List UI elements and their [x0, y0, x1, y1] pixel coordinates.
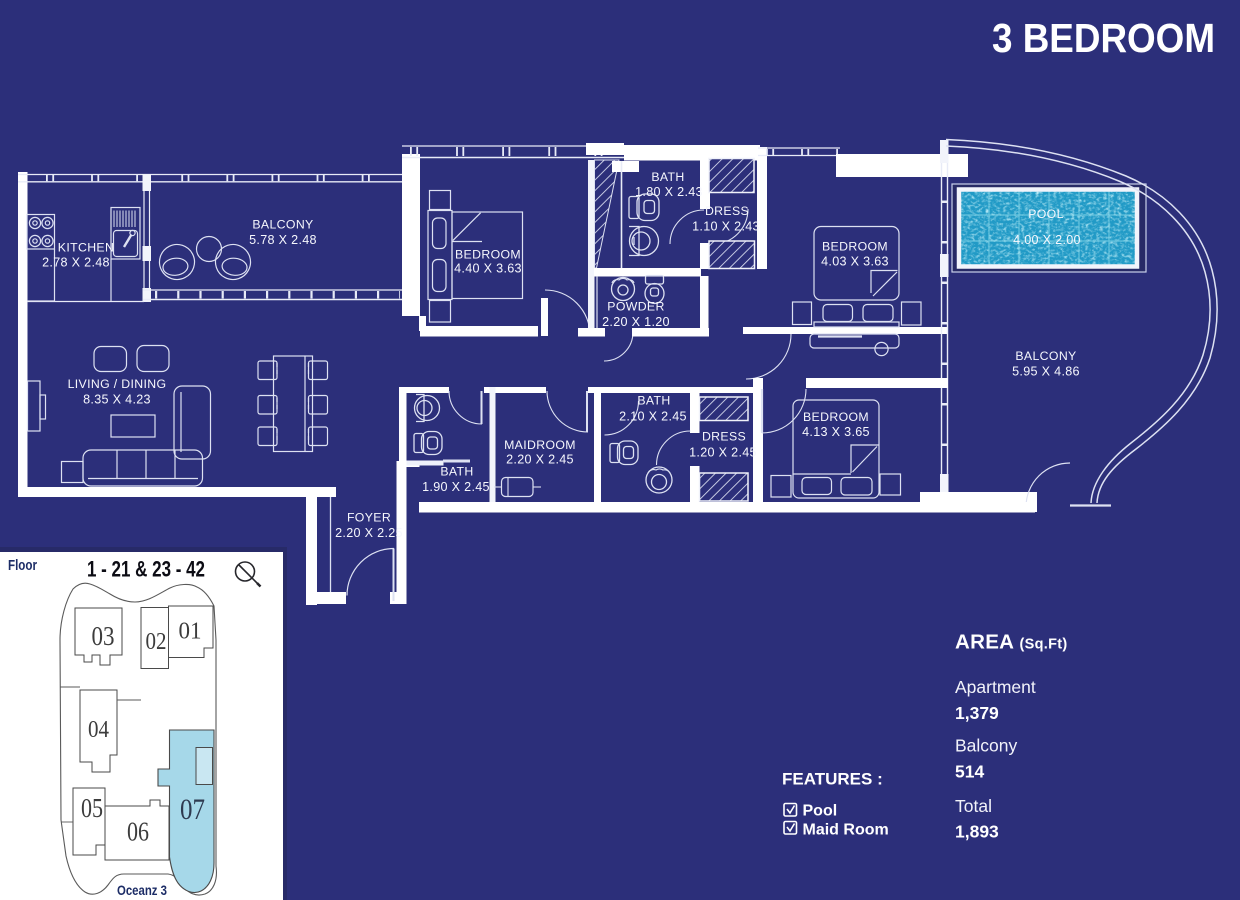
svg-text:2.20 X 1.20: 2.20 X 1.20 [602, 315, 670, 329]
svg-text:Pool: Pool [803, 803, 838, 820]
svg-text:MAIDROOM: MAIDROOM [504, 438, 576, 452]
svg-text:4.13 X 3.65: 4.13 X 3.65 [802, 425, 870, 439]
svg-text:05: 05 [81, 793, 103, 823]
svg-text:Total: Total [955, 796, 992, 816]
svg-text:8.35 X 4.23: 8.35 X 4.23 [83, 393, 151, 407]
svg-text:4.40 X 3.63: 4.40 X 3.63 [454, 262, 522, 276]
svg-text:Apartment: Apartment [955, 677, 1036, 697]
svg-text:BEDROOM: BEDROOM [822, 240, 888, 254]
svg-text:2.20 X 2.45: 2.20 X 2.45 [506, 453, 574, 467]
svg-text:06: 06 [127, 817, 149, 847]
svg-text:POOL: POOL [1028, 207, 1064, 221]
svg-text:BATH: BATH [651, 170, 684, 184]
svg-text:DRESS: DRESS [702, 430, 746, 444]
svg-text:BEDROOM: BEDROOM [455, 248, 521, 262]
svg-text:5.78 X 2.48: 5.78 X 2.48 [249, 233, 317, 247]
svg-text:BALCONY: BALCONY [252, 218, 313, 232]
svg-text:2.10 X 2.45: 2.10 X 2.45 [619, 410, 687, 424]
svg-text:BATH: BATH [440, 465, 473, 479]
svg-text:1.10 X 2.43: 1.10 X 2.43 [692, 220, 760, 234]
svg-text:03: 03 [92, 621, 115, 651]
svg-text:FEATURES :: FEATURES : [782, 770, 883, 789]
svg-text:1.80 X 2.43: 1.80 X 2.43 [635, 185, 703, 199]
svg-text:514: 514 [955, 762, 984, 782]
svg-text:Balcony: Balcony [955, 736, 1018, 756]
svg-text:BATH: BATH [637, 394, 670, 408]
svg-text:FOYER: FOYER [347, 511, 391, 525]
svg-text:01: 01 [179, 619, 202, 645]
svg-text:1,379: 1,379 [955, 703, 999, 723]
svg-text:04: 04 [88, 717, 109, 743]
svg-text:4.03 X 3.63: 4.03 X 3.63 [821, 255, 889, 269]
svg-text:1 - 21 & 23 - 42: 1 - 21 & 23 - 42 [87, 557, 205, 582]
svg-text:BALCONY: BALCONY [1015, 349, 1076, 363]
svg-text:07: 07 [180, 793, 205, 826]
svg-text:LIVING / DINING: LIVING / DINING [68, 377, 167, 391]
svg-text:Floor: Floor [8, 558, 37, 574]
svg-text:02: 02 [146, 629, 167, 655]
svg-text:2.20 X 2.25: 2.20 X 2.25 [335, 526, 403, 540]
svg-text:POWDER: POWDER [607, 300, 664, 314]
svg-text:1.90 X 2.45: 1.90 X 2.45 [422, 480, 490, 494]
svg-text:2.78 X 2.48: 2.78 X 2.48 [42, 256, 110, 270]
svg-text:4.00 X 2.00: 4.00 X 2.00 [1013, 233, 1081, 247]
svg-text:DRESS: DRESS [705, 204, 749, 218]
svg-text:1,893: 1,893 [955, 822, 999, 842]
svg-text:3 BEDROOM: 3 BEDROOM [992, 15, 1215, 61]
svg-text:5.95 X 4.86: 5.95 X 4.86 [1012, 365, 1080, 379]
svg-text:1.20 X 2.45: 1.20 X 2.45 [689, 446, 757, 460]
svg-text:Oceanz 3: Oceanz 3 [117, 882, 167, 898]
svg-text:BEDROOM: BEDROOM [803, 410, 869, 424]
svg-text:KITCHEN: KITCHEN [58, 241, 114, 255]
svg-text:Maid Room: Maid Room [803, 822, 889, 839]
